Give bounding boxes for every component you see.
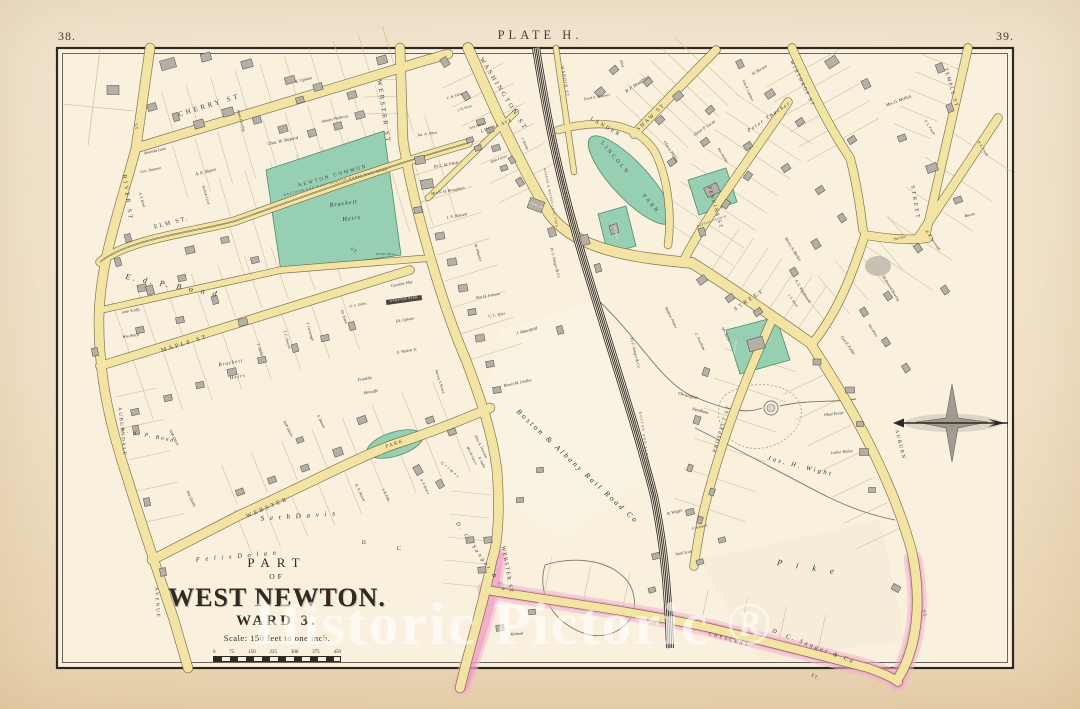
building <box>435 232 445 240</box>
building <box>177 274 186 282</box>
building <box>175 316 184 324</box>
building <box>475 334 485 342</box>
building <box>516 497 523 503</box>
building <box>846 387 855 393</box>
building <box>484 537 492 544</box>
scale-tick: 75 <box>229 650 234 655</box>
building <box>813 359 821 365</box>
building <box>195 381 204 389</box>
building <box>447 258 457 266</box>
building <box>257 356 266 364</box>
building <box>107 86 119 95</box>
building <box>163 394 172 402</box>
building <box>458 284 468 292</box>
building <box>486 360 495 367</box>
map-label: WIND MILL <box>376 252 397 256</box>
scale-tick: 0 <box>213 650 216 655</box>
building <box>468 308 477 315</box>
map-label: ST <box>134 123 140 131</box>
map-label: C. <box>396 546 402 552</box>
watermark: Historic Pictoric ® <box>254 590 773 659</box>
map-label: D. <box>360 540 367 547</box>
building <box>869 488 876 493</box>
building <box>143 498 150 507</box>
building <box>857 422 864 427</box>
atlas-page: 38. PLATE H. 39. WASHINGTON STLUCAS AVEC… <box>0 0 1080 709</box>
building <box>320 334 329 342</box>
building <box>860 449 869 456</box>
pond <box>767 404 775 412</box>
building <box>130 408 139 416</box>
building <box>536 467 543 473</box>
title-part: PART <box>163 556 391 570</box>
building <box>493 386 502 393</box>
building <box>420 179 433 190</box>
grove <box>865 256 891 276</box>
title-of: OF <box>163 573 391 581</box>
building <box>414 155 425 165</box>
map-label: ST. <box>810 673 821 681</box>
building <box>414 206 423 213</box>
building <box>238 318 248 327</box>
building <box>91 348 98 357</box>
